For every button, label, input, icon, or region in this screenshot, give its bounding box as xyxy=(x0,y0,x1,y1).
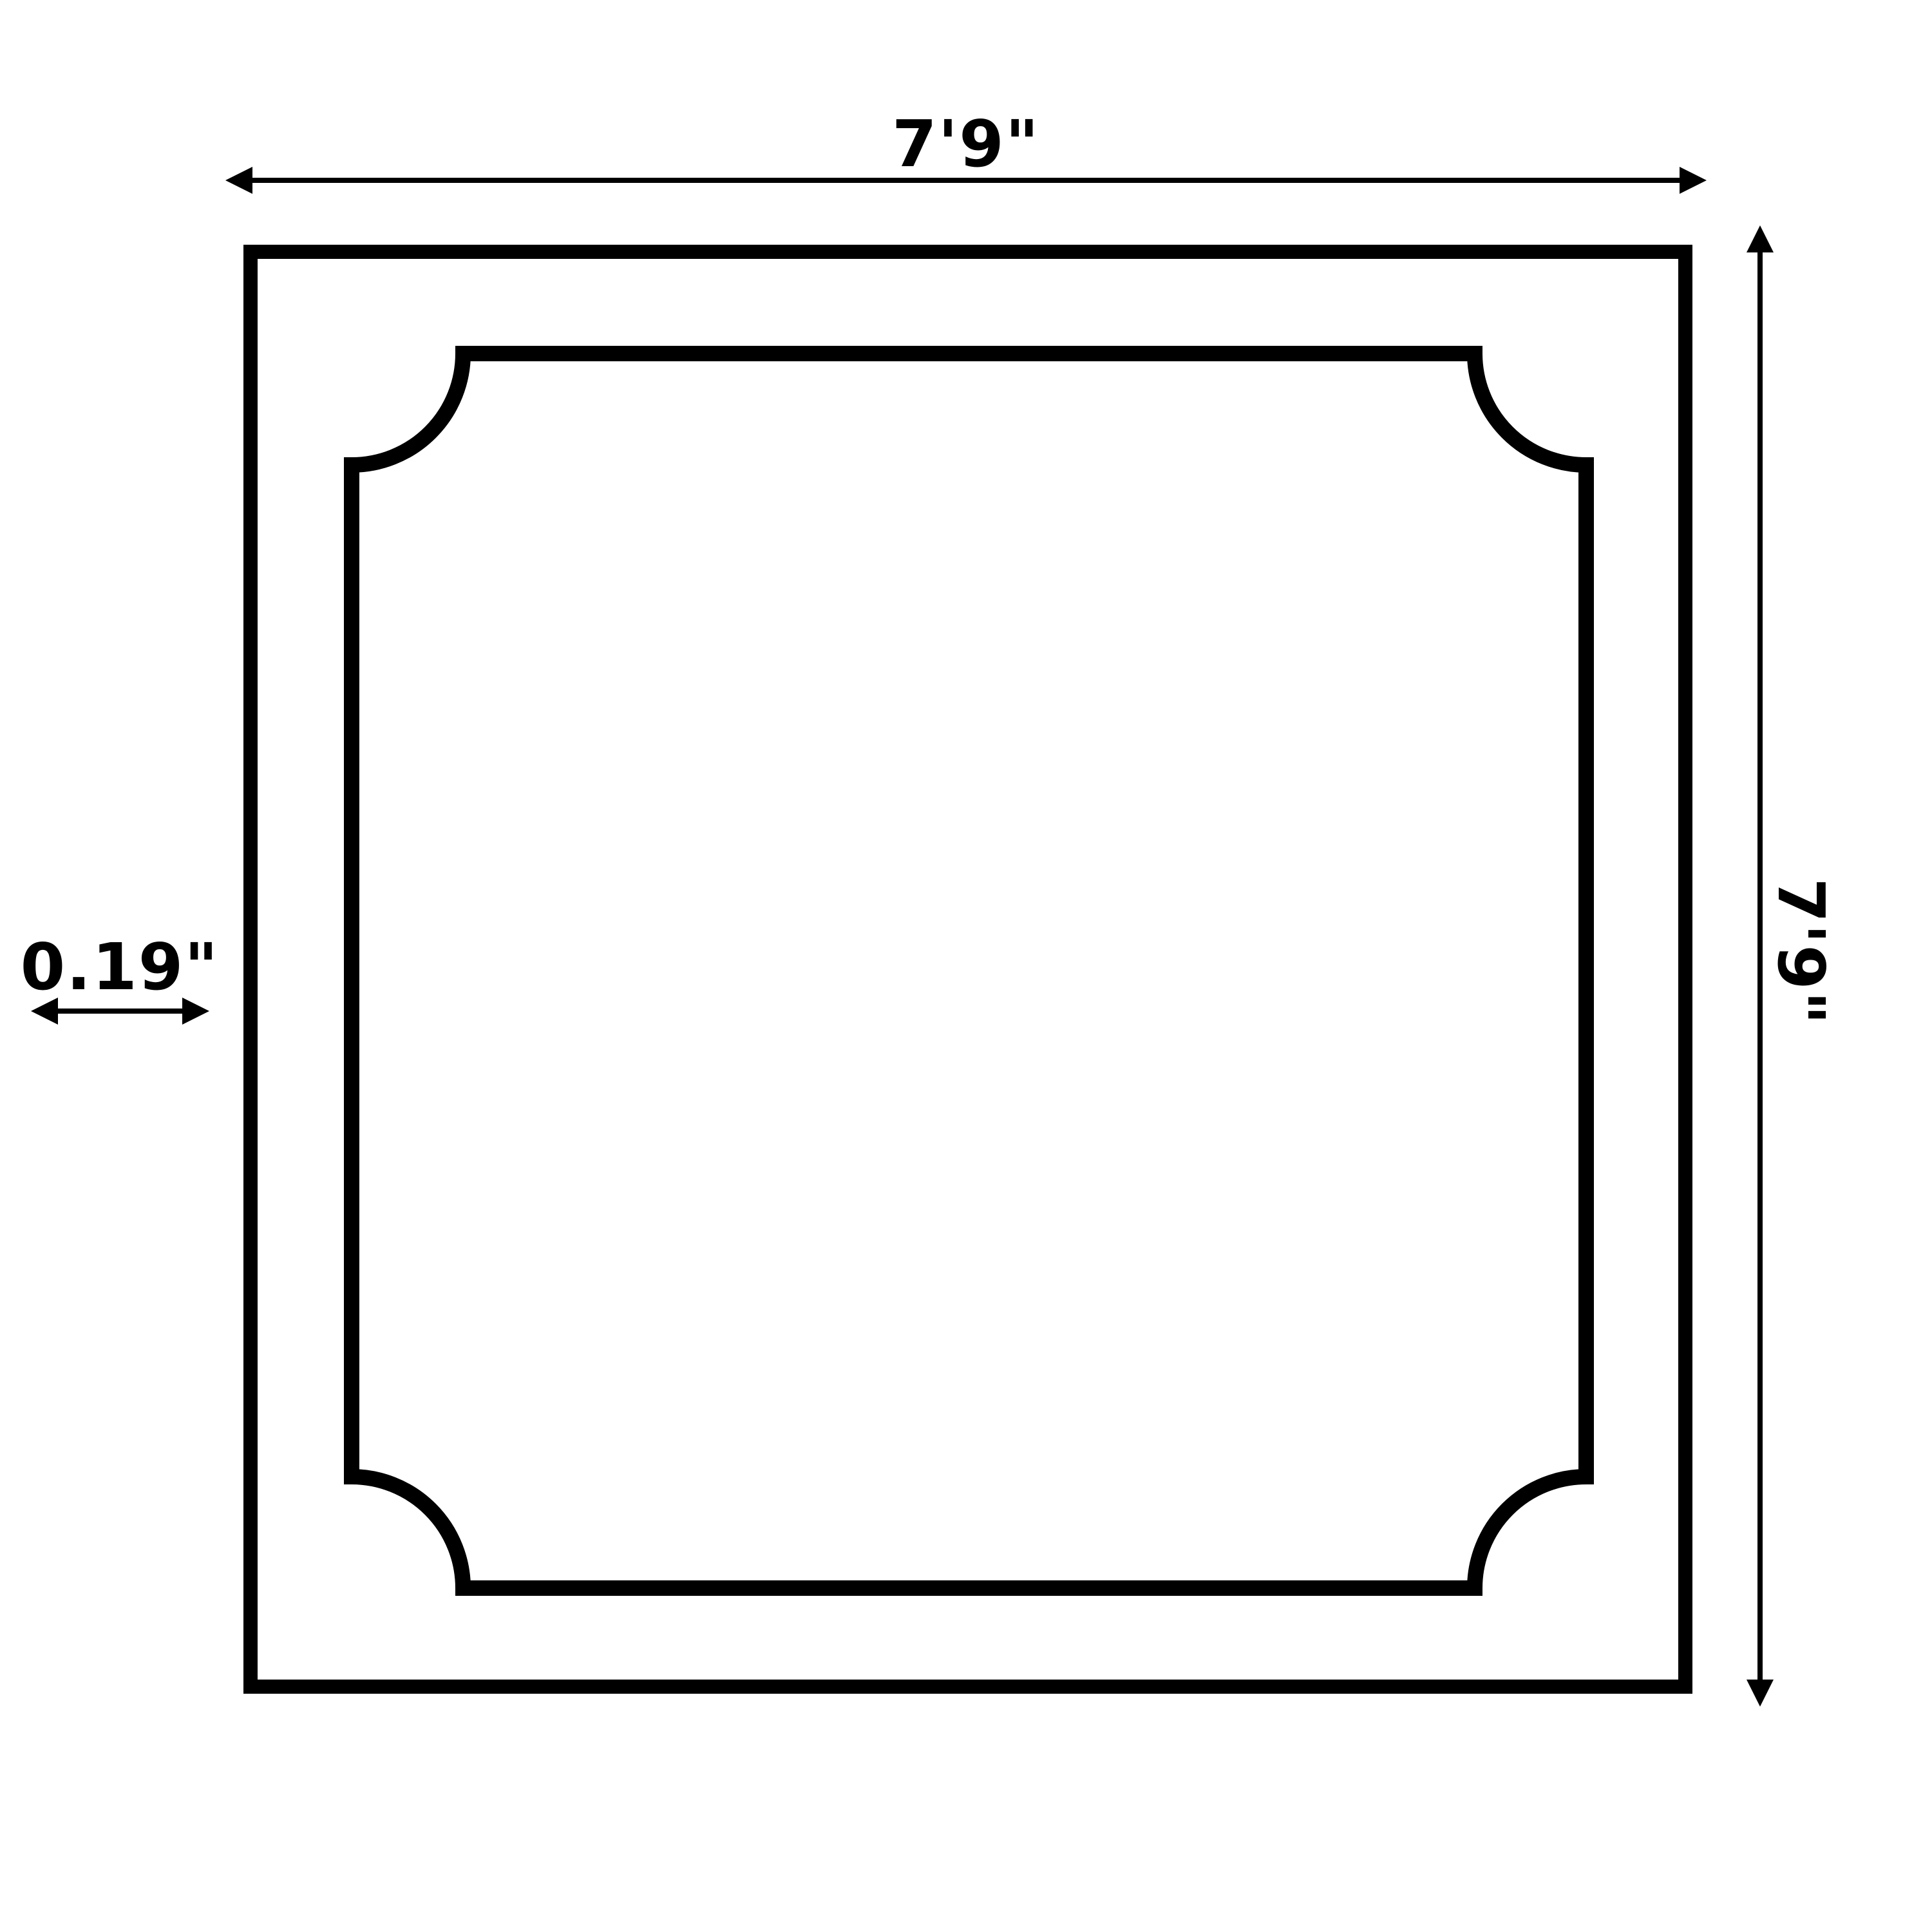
thickness-dimension: 0.19" xyxy=(21,929,220,1025)
thickness-dimension-label: 0.19" xyxy=(21,929,220,1005)
dimension-diagram-canvas: 7'9" 7'9" 0.19" xyxy=(0,0,1932,1932)
page-background xyxy=(0,0,1932,1932)
panel-dimension-drawing: 7'9" 7'9" 0.19" xyxy=(0,0,1932,1932)
height-dimension-label: 7'9" xyxy=(1763,878,1839,1026)
width-dimension-label: 7'9" xyxy=(892,106,1040,182)
